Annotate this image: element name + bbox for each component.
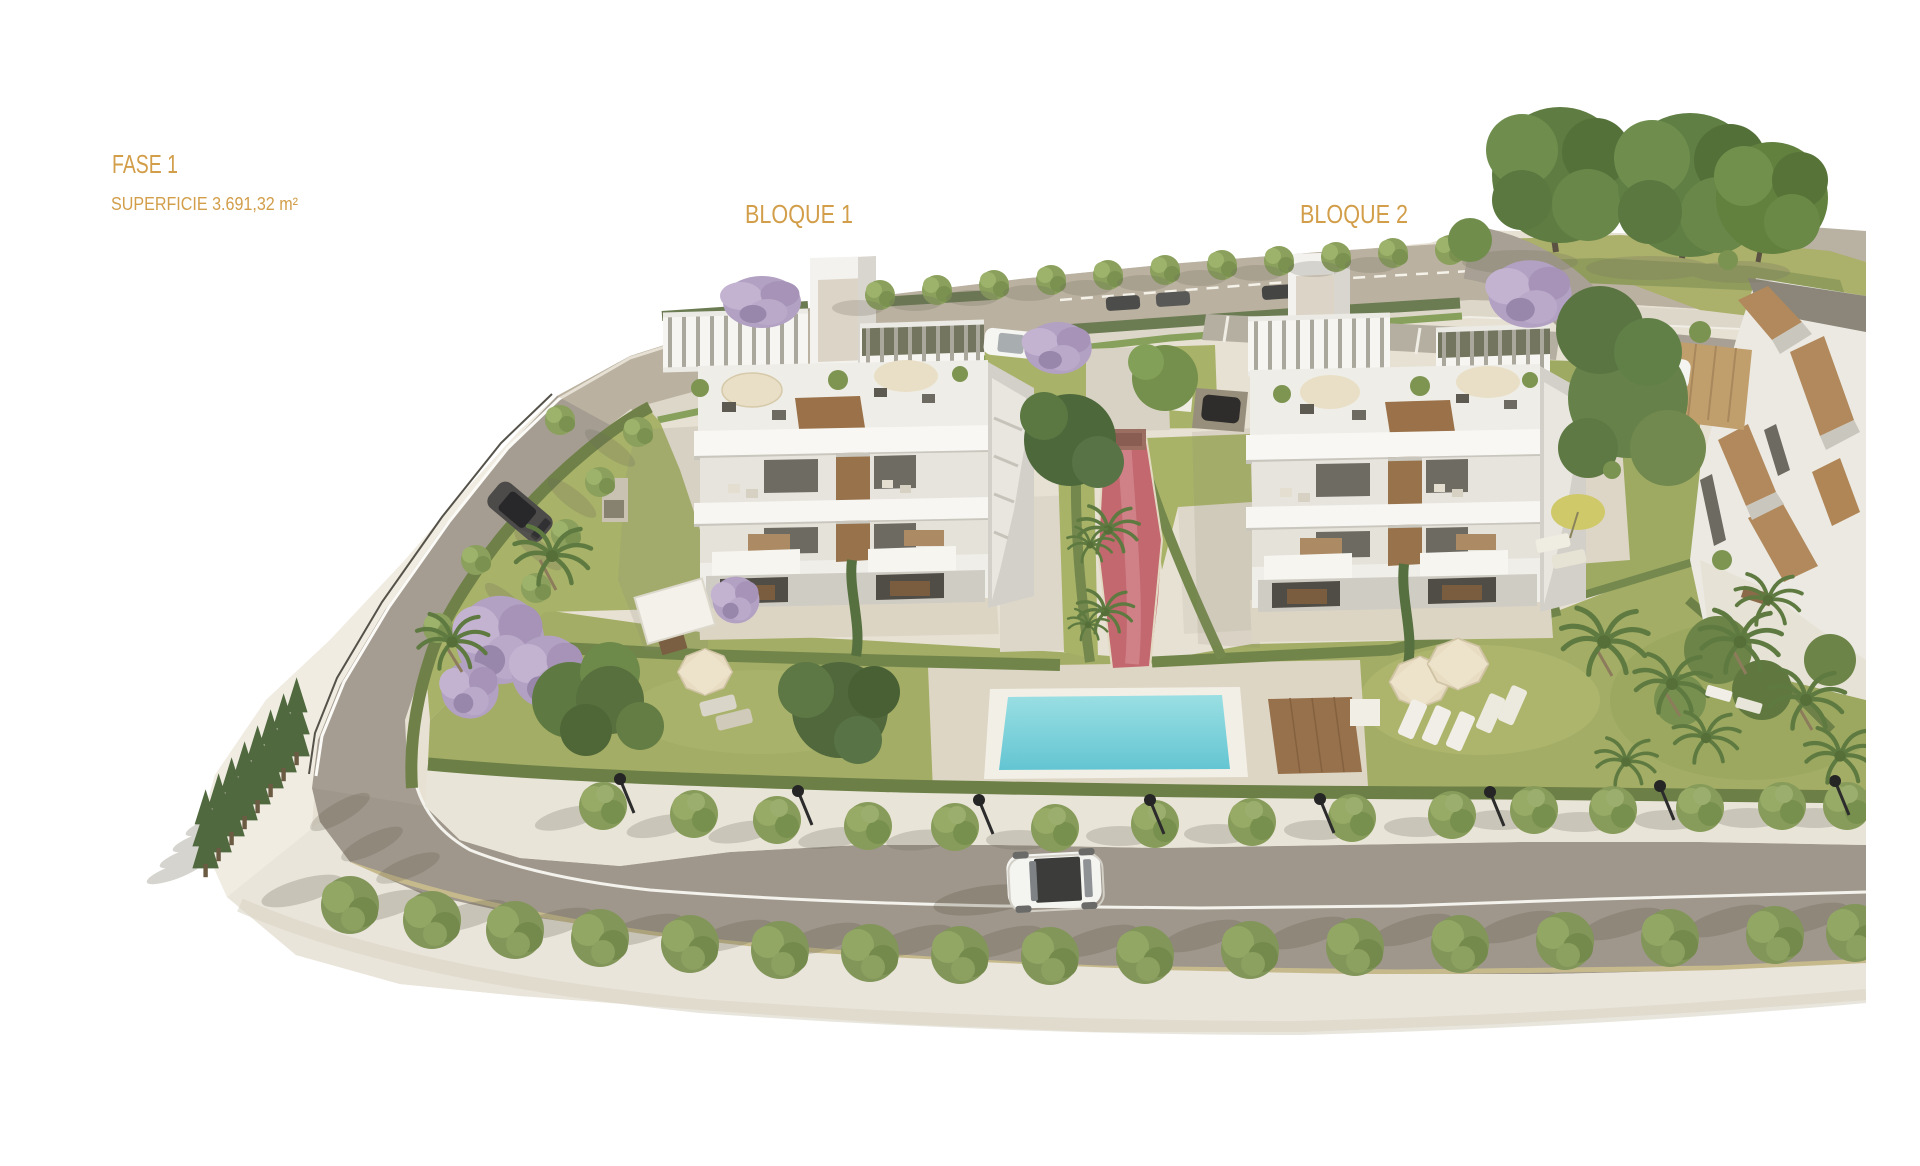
svg-text:SUPERFICIE 3.691,32 m²: SUPERFICIE 3.691,32 m²	[111, 194, 298, 214]
svg-text:BLOQUE 1: BLOQUE 1	[745, 199, 853, 229]
svg-text:FASE 1: FASE 1	[112, 149, 178, 179]
svg-text:BLOQUE 2: BLOQUE 2	[1300, 199, 1408, 229]
